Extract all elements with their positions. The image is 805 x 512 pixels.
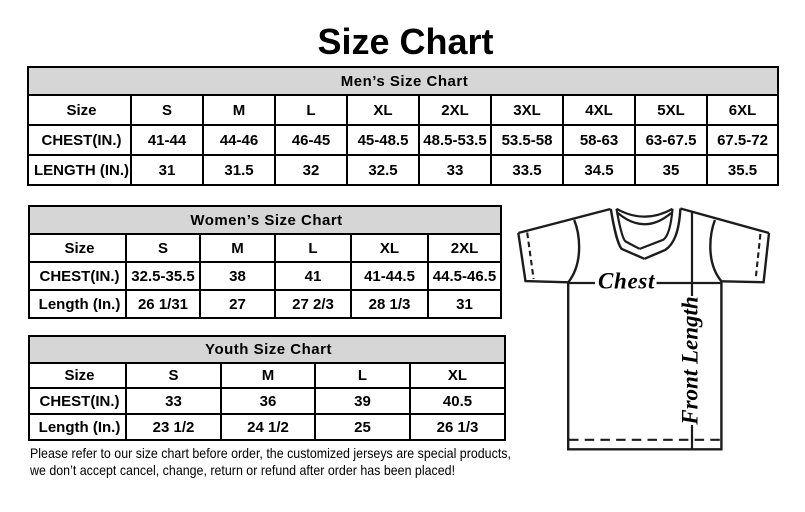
svg-text:Front Length: Front Length [678, 296, 703, 425]
svg-text:Chest: Chest [598, 269, 655, 294]
